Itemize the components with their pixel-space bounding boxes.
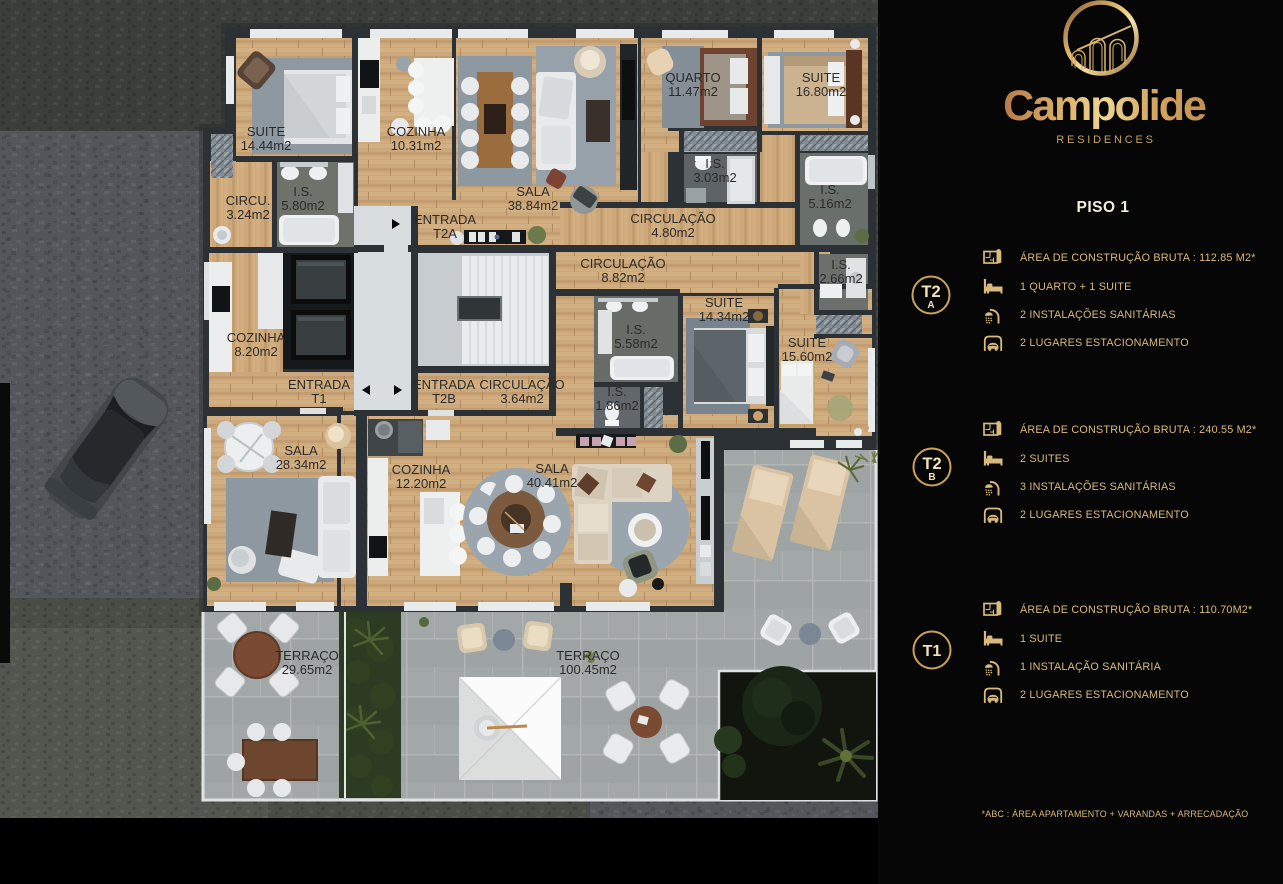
svg-text:14.44m2: 14.44m2 (241, 138, 292, 153)
svg-text:10.31m2: 10.31m2 (391, 138, 442, 153)
svg-text:8.82m2: 8.82m2 (601, 270, 644, 285)
svg-text:2.66m2: 2.66m2 (819, 271, 862, 286)
svg-text:I.S.: I.S. (705, 156, 725, 171)
svg-text:SUITE: SUITE (247, 124, 286, 139)
svg-text:COZINHA: COZINHA (227, 330, 286, 345)
svg-text:B: B (928, 472, 935, 483)
svg-text:SUITE: SUITE (705, 295, 744, 310)
svg-text:3 INSTALAÇÕES SANITÁRIAS: 3 INSTALAÇÕES SANITÁRIAS (1020, 480, 1176, 493)
svg-text:I.S.: I.S. (607, 384, 627, 399)
svg-text:ÁREA DE CONSTRUÇÃO BRUTA : 24: ÁREA DE CONSTRUÇÃO BRUTA : 240.55 M2* (1020, 423, 1257, 436)
svg-text:SALA: SALA (516, 184, 550, 199)
svg-text:5.58m2: 5.58m2 (614, 336, 657, 351)
svg-text:15.60m2: 15.60m2 (782, 349, 833, 364)
svg-text:1 INSTALAÇÃO SANITÁRIA: 1 INSTALAÇÃO SANITÁRIA (1020, 660, 1162, 673)
svg-text:2 LUGARES ESTACIONAMENTO: 2 LUGARES ESTACIONAMENTO (1020, 337, 1189, 349)
svg-text:SUITE: SUITE (788, 335, 827, 350)
svg-text:CIRCULAÇÃO: CIRCULAÇÃO (580, 256, 665, 271)
svg-text:2 LUGARES ESTACIONAMENTO: 2 LUGARES ESTACIONAMENTO (1020, 689, 1189, 701)
svg-text:2 LUGARES ESTACIONAMENTO: 2 LUGARES ESTACIONAMENTO (1020, 509, 1189, 521)
svg-text:T1: T1 (311, 391, 326, 406)
svg-text:38.84m2: 38.84m2 (508, 198, 559, 213)
svg-text:28.34m2: 28.34m2 (276, 457, 327, 472)
svg-text:COZINHA: COZINHA (392, 462, 451, 477)
svg-text:SALA: SALA (535, 461, 569, 476)
svg-text:T2B: T2B (432, 391, 456, 406)
svg-text:CIRCULAÇÃO: CIRCULAÇÃO (630, 211, 715, 226)
svg-text:100.45m2: 100.45m2 (559, 662, 617, 677)
svg-text:SUITE: SUITE (802, 70, 841, 85)
svg-text:QUARTO: QUARTO (665, 70, 720, 85)
svg-text:8.20m2: 8.20m2 (234, 344, 277, 359)
svg-text:29.65m2: 29.65m2 (282, 662, 333, 677)
svg-text:5.16m2: 5.16m2 (808, 196, 851, 211)
svg-text:12.20m2: 12.20m2 (396, 476, 447, 491)
svg-text:T2A: T2A (433, 226, 457, 241)
svg-text:T2: T2 (921, 283, 940, 301)
svg-text:3.03m2: 3.03m2 (693, 170, 736, 185)
svg-text:SALA: SALA (284, 443, 318, 458)
svg-text:2 SUITES: 2 SUITES (1020, 453, 1070, 465)
svg-text:3.24m2: 3.24m2 (226, 207, 269, 222)
svg-text:11.47m2: 11.47m2 (668, 84, 718, 99)
svg-text:40.41m2: 40.41m2 (527, 475, 578, 490)
svg-text:ENTRADA: ENTRADA (413, 377, 475, 392)
svg-text:CIRCULAÇÃO: CIRCULAÇÃO (479, 377, 564, 392)
svg-text:I.S.: I.S. (820, 182, 840, 197)
svg-text:3.64m2: 3.64m2 (500, 391, 543, 406)
svg-text:1 QUARTO + 1 SUITE: 1 QUARTO + 1 SUITE (1020, 281, 1132, 293)
svg-text:2 INSTALAÇÕES SANITÁRIAS: 2 INSTALAÇÕES SANITÁRIAS (1020, 308, 1176, 321)
svg-text:T1: T1 (923, 643, 942, 660)
svg-text:1 SUITE: 1 SUITE (1020, 633, 1062, 645)
svg-text:ENTRADA: ENTRADA (414, 212, 476, 227)
svg-text:14.34m2: 14.34m2 (699, 309, 750, 324)
svg-text:ENTRADA: ENTRADA (288, 377, 350, 392)
svg-text:CIRCU.: CIRCU. (226, 193, 271, 208)
svg-text:A: A (927, 300, 934, 311)
svg-text:TERRAÇO: TERRAÇO (275, 648, 339, 663)
svg-text:I.S.: I.S. (626, 322, 646, 337)
svg-text:4.80m2: 4.80m2 (651, 225, 694, 240)
svg-text:Campolide: Campolide (1003, 82, 1206, 130)
svg-text:I.S.: I.S. (831, 257, 851, 272)
svg-text:*ABC : ÁREA APARTAMENTO + VAR: *ABC : ÁREA APARTAMENTO + VARANDAS + ARR… (982, 809, 1249, 819)
svg-text:5.80m2: 5.80m2 (281, 198, 324, 213)
svg-text:PISO 1: PISO 1 (1077, 199, 1130, 216)
svg-text:T2: T2 (922, 455, 941, 473)
svg-text:1.86m2: 1.86m2 (595, 398, 638, 413)
svg-text:I.S.: I.S. (293, 184, 313, 199)
svg-text:RESIDENCES: RESIDENCES (1056, 134, 1156, 146)
svg-text:TERRAÇO: TERRAÇO (556, 648, 620, 663)
svg-text:16.80m2: 16.80m2 (796, 84, 847, 99)
svg-text:ÁREA DE CONSTRUÇÃO BRUTA : 11: ÁREA DE CONSTRUÇÃO BRUTA : 110.70M2* (1020, 603, 1253, 616)
svg-text:ÁREA DE CONSTRUÇÃO BRUTA : 11: ÁREA DE CONSTRUÇÃO BRUTA : 112.85 M2* (1020, 251, 1256, 264)
svg-text:COZINHA: COZINHA (387, 124, 446, 139)
